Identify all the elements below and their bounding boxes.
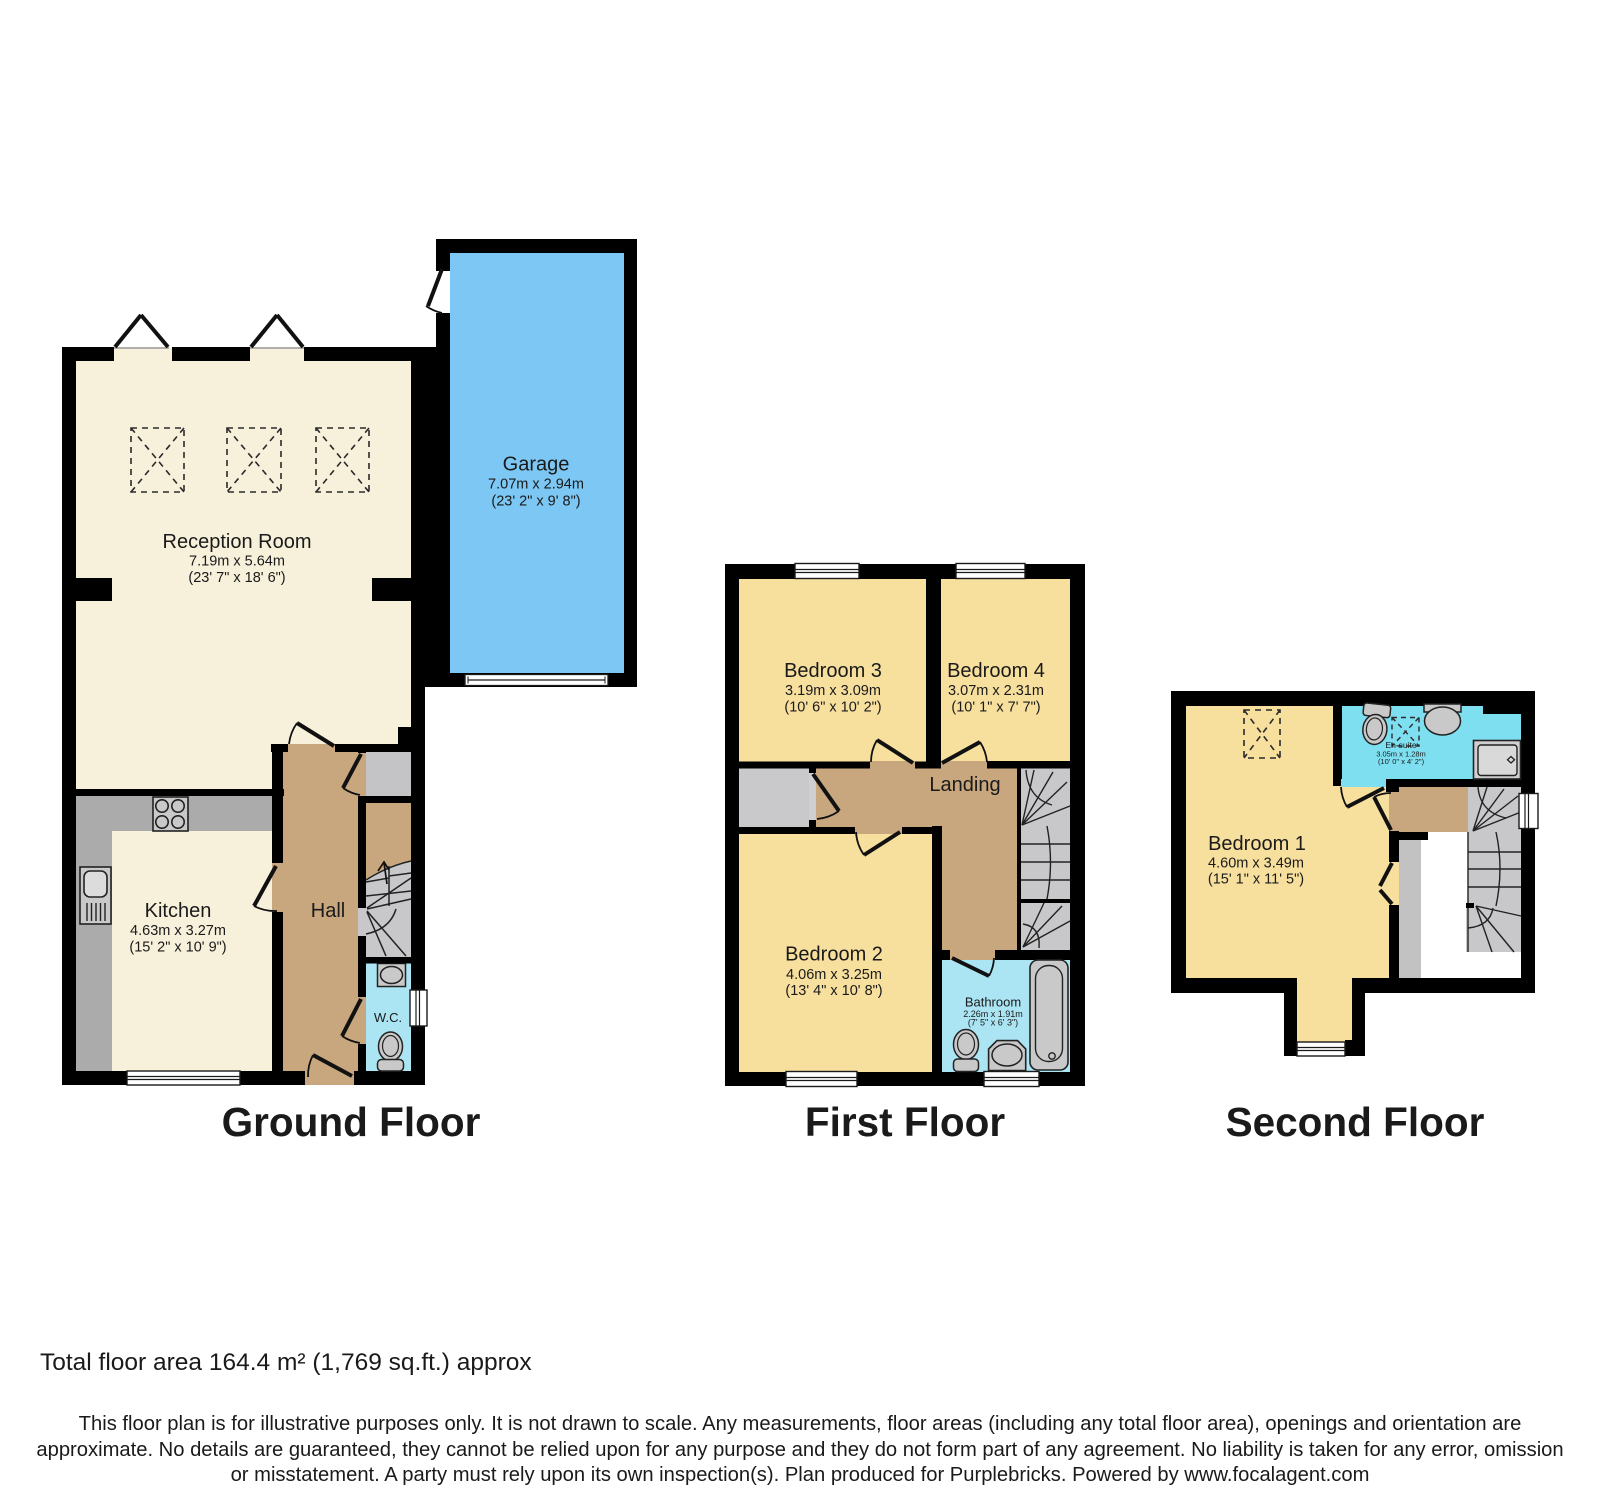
svg-text:Second Floor: Second Floor (1226, 1099, 1485, 1145)
svg-text:(10' 0" x 4' 2"): (10' 0" x 4' 2") (1378, 757, 1425, 766)
svg-text:Bedroom 3: Bedroom 3 (784, 660, 882, 682)
svg-text:Bedroom 2: Bedroom 2 (785, 944, 883, 966)
svg-text:7.07m x 2.94m: 7.07m x 2.94m (488, 477, 584, 493)
svg-text:4.63m x 3.27m: 4.63m x 3.27m (130, 923, 226, 939)
svg-text:(10' 1" x 7' 7"): (10' 1" x 7' 7") (951, 700, 1040, 716)
svg-text:Bedroom 1: Bedroom 1 (1208, 833, 1306, 855)
svg-text:or misstatement. A party must: or misstatement. A party must rely upon … (231, 1464, 1370, 1486)
svg-text:7.19m x 5.64m: 7.19m x 5.64m (189, 554, 285, 570)
svg-text:Garage: Garage (503, 454, 570, 476)
svg-text:3.07m x 2.31m: 3.07m x 2.31m (948, 683, 1044, 699)
svg-text:Total floor area 164.4 m² (1,7: Total floor area 164.4 m² (1,769 sq.ft.)… (40, 1349, 532, 1376)
svg-text:(7' 5" x 6' 3"): (7' 5" x 6' 3") (968, 1018, 1018, 1028)
svg-text:En-suite: En-suite (1385, 740, 1416, 750)
svg-text:(23' 7" x 18' 6"): (23' 7" x 18' 6") (188, 570, 285, 586)
svg-text:Bedroom 4: Bedroom 4 (947, 660, 1045, 682)
svg-text:(23' 2" x 9' 8"): (23' 2" x 9' 8") (491, 494, 580, 510)
svg-text:4.60m x 3.49m: 4.60m x 3.49m (1208, 856, 1304, 872)
svg-text:3.19m x 3.09m: 3.19m x 3.09m (785, 683, 881, 699)
svg-text:4.06m x 3.25m: 4.06m x 3.25m (786, 967, 882, 983)
svg-text:(10' 6" x 10' 2"): (10' 6" x 10' 2") (784, 700, 881, 716)
svg-text:(15' 1" x 11' 5"): (15' 1" x 11' 5") (1208, 872, 1304, 888)
svg-text:Ground Floor: Ground Floor (222, 1099, 481, 1145)
svg-text:First Floor: First Floor (805, 1099, 1005, 1145)
svg-text:approximate. No details are gu: approximate. No details are guaranteed, … (36, 1439, 1563, 1461)
svg-text:This floor plan is for illustr: This floor plan is for illustrative purp… (79, 1413, 1522, 1435)
svg-text:W.C.: W.C. (374, 1010, 402, 1025)
svg-text:(13' 4" x 10' 8"): (13' 4" x 10' 8") (785, 983, 882, 999)
svg-text:Landing: Landing (929, 774, 1000, 796)
svg-text:Kitchen: Kitchen (145, 900, 212, 922)
svg-text:Reception Room: Reception Room (163, 531, 312, 553)
svg-text:Bathroom: Bathroom (965, 995, 1021, 1010)
svg-text:(15' 2" x 10' 9"): (15' 2" x 10' 9") (129, 940, 226, 956)
svg-text:Hall: Hall (311, 900, 345, 922)
